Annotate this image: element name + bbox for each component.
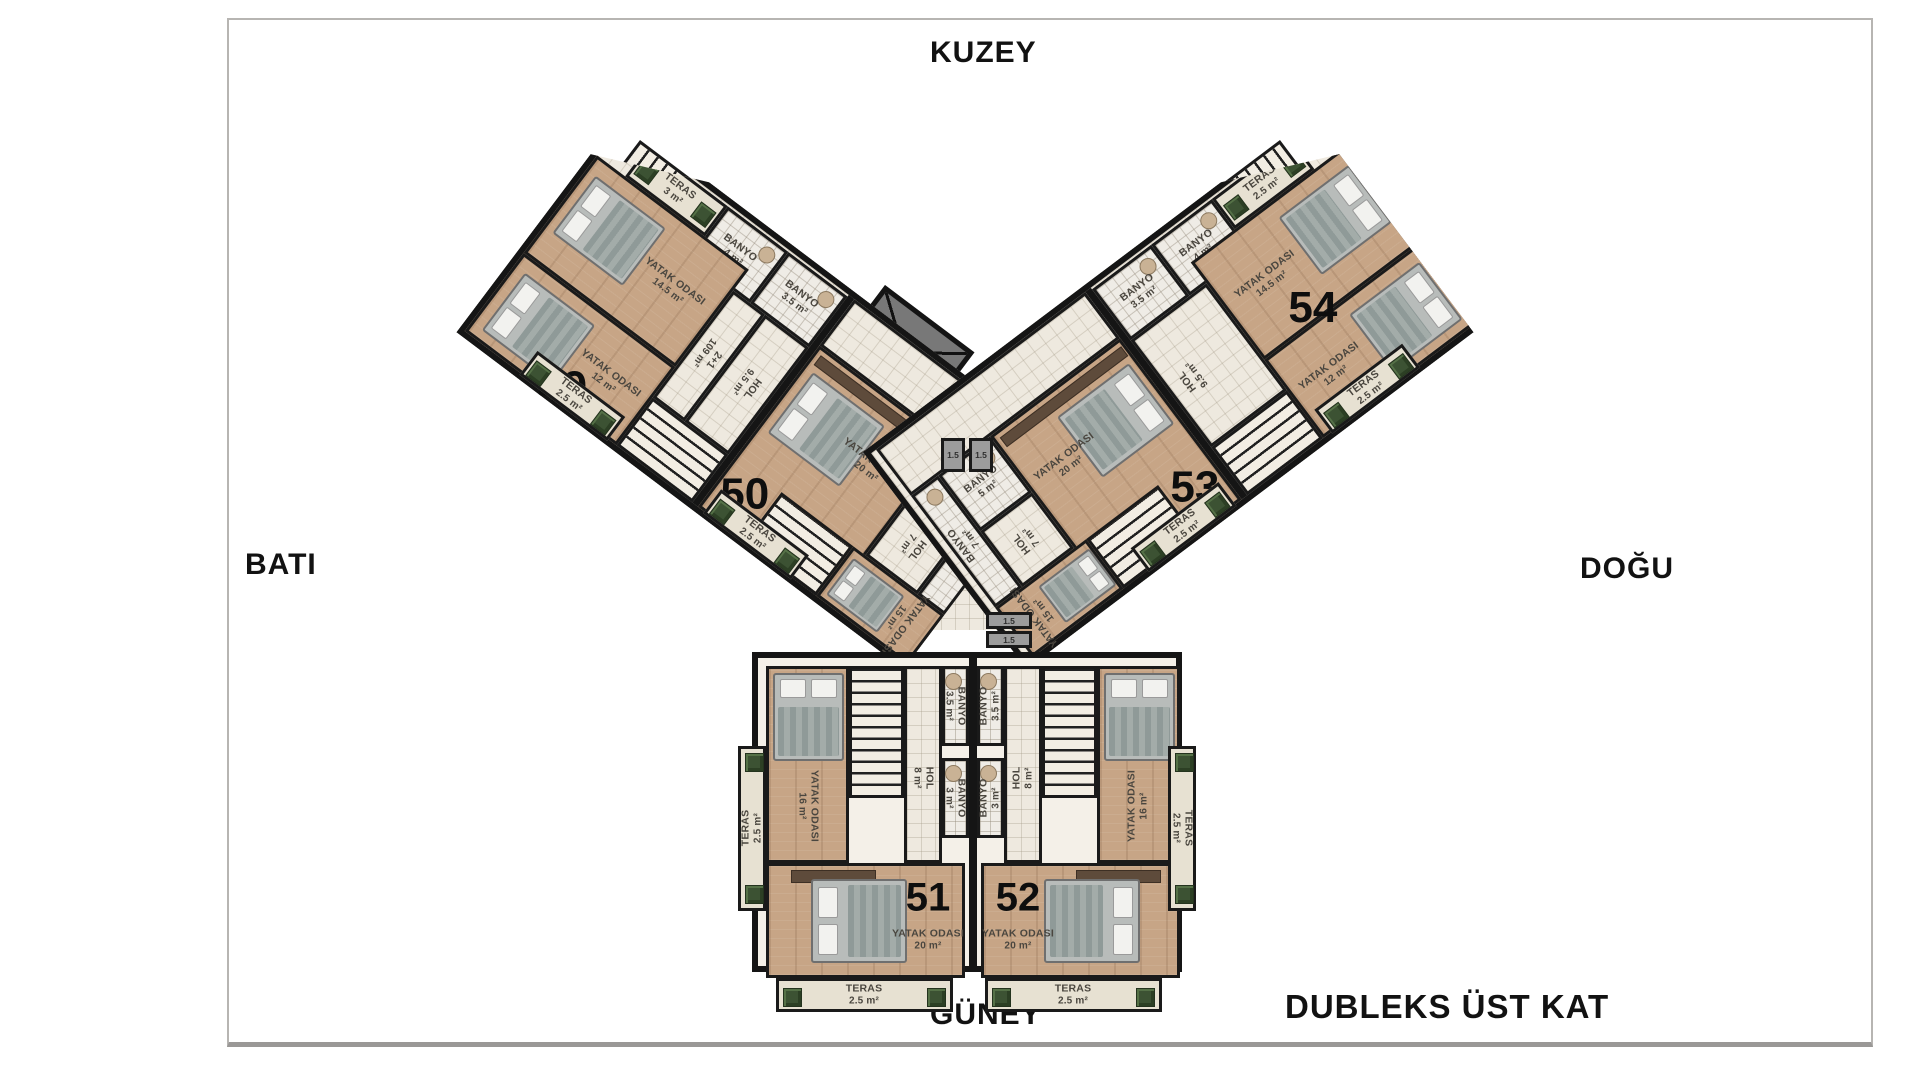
- compass-east: DOĞU: [1580, 552, 1674, 586]
- room-label-bedroom-51-large: YATAK ODASI20 m²: [892, 929, 964, 952]
- room-label-bedroom-52-large: YATAK ODASI20 m²: [982, 929, 1054, 952]
- room-label-bath-51-2: BANYO3 m²: [944, 779, 967, 818]
- room-label-hall-51: HOL8 m²: [912, 767, 935, 790]
- plant-icon: [1223, 194, 1250, 221]
- room-label-bedroom-51-small: YATAK ODASI16 m²: [797, 770, 820, 842]
- bed: [1104, 673, 1175, 761]
- plant-icon: [745, 753, 764, 772]
- compass-west: BATI: [245, 548, 317, 582]
- room-label-terrace-51-bottom: TERAS2.5 m²: [846, 984, 883, 1007]
- room-label-bedroom-52-small: YATAK ODASI16 m²: [1127, 770, 1150, 842]
- bed: [1044, 879, 1140, 963]
- unit-number-54: 54: [1288, 283, 1337, 333]
- hall-52: [1004, 666, 1042, 863]
- floor-plan-canvas: KUZEY GÜNEY BATI DOĞU DUBLEKS ÜST KAT BA…: [0, 0, 1920, 1080]
- floor-type-label: DUBLEKS ÜST KAT: [1285, 988, 1609, 1026]
- bottom-block: YATAK ODASI16 m² HOL8 m² BANYO3.5 m² BAN…: [752, 652, 1182, 972]
- compass-north: KUZEY: [930, 36, 1037, 70]
- room-label-terrace-52-side: TERAS2.5 m²: [1171, 810, 1194, 847]
- room-label-terrace-51-side: TERAS2.5 m²: [741, 810, 764, 847]
- plant-icon: [1175, 885, 1194, 904]
- service-shaft: 1.5: [986, 612, 1032, 629]
- duplex-stair-51: [849, 666, 904, 798]
- plant-icon: [1139, 540, 1166, 567]
- plant-icon: [525, 360, 552, 387]
- unit-number-52: 52: [996, 876, 1041, 921]
- room-label-terrace-52-bottom: TERAS2.5 m²: [1055, 984, 1092, 1007]
- plant-icon: [927, 988, 946, 1007]
- plant-icon: [745, 885, 764, 904]
- plant-icon: [590, 409, 617, 436]
- room-label-bath-52-1: BANYO3.5 m²: [979, 687, 1002, 726]
- service-shaft: 1.5: [969, 438, 993, 472]
- unit-number-51: 51: [906, 876, 951, 921]
- plant-icon: [1136, 988, 1155, 1007]
- plant-icon: [709, 499, 736, 526]
- bed: [773, 673, 844, 761]
- service-shaft: 1.5: [986, 631, 1032, 648]
- plant-icon: [1388, 353, 1415, 380]
- party-wall-51-52: [969, 658, 977, 966]
- room-label-bath-51-1: BANYO3.5 m²: [944, 687, 967, 726]
- hall-51: [904, 666, 942, 863]
- plant-icon: [1204, 491, 1231, 518]
- room-label-hall-52: HOL8 m²: [1012, 767, 1035, 790]
- plant-icon: [774, 547, 801, 574]
- plant-icon: [783, 988, 802, 1007]
- room-label-bath-52-2: BANYO3 m²: [979, 779, 1002, 818]
- plant-icon: [1175, 753, 1194, 772]
- plant-icon: [992, 988, 1011, 1007]
- plant-icon: [1323, 402, 1350, 429]
- plant-icon: [690, 201, 717, 228]
- service-shaft: 1.5: [941, 438, 965, 472]
- duplex-stair-52: [1042, 666, 1097, 798]
